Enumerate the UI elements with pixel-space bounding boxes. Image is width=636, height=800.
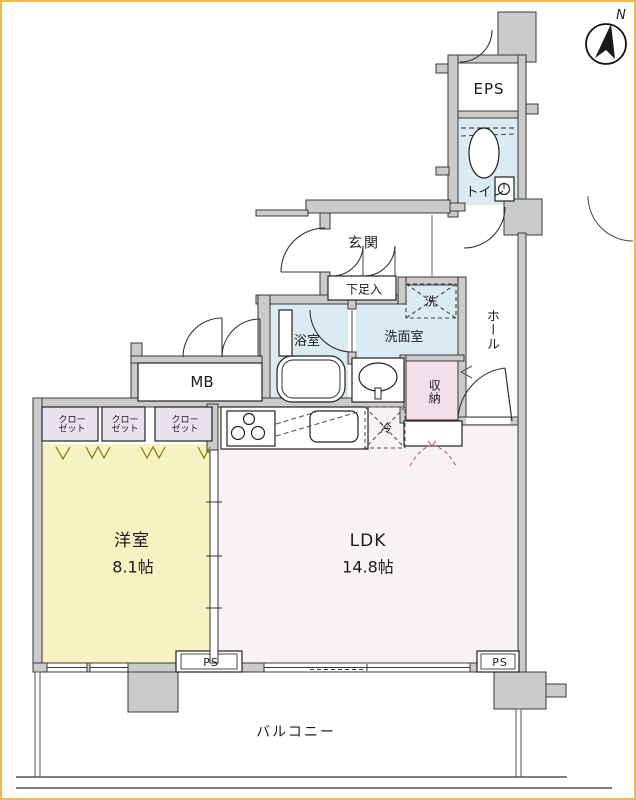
- closet-label-1-line2: ゼット: [58, 425, 85, 435]
- closet-label-2: クロー ゼット: [95, 417, 155, 436]
- refrigerator-label: 冷: [380, 423, 392, 436]
- entrance-door-arc: [281, 228, 325, 272]
- bathroom-shelf: [279, 310, 292, 356]
- washroom-label: 洗面室: [384, 331, 423, 345]
- eps-label: EPS: [473, 82, 504, 98]
- toilet-door-arc: [464, 207, 505, 248]
- neighbor-door-arc: [588, 196, 633, 241]
- mb-door-arc-2: [222, 319, 260, 357]
- floorplan-image: N EPS トイレ 玄関 下足入 洗 洗面室 ホール 浴室 MB 収納 冷 クロ…: [0, 0, 636, 800]
- western-room-size: 8.1帖: [112, 560, 153, 577]
- shoe-cabinet-label: 下足入: [346, 284, 382, 297]
- meter-box-label: MB: [190, 375, 213, 391]
- closet-label-3: クロー ゼット: [155, 417, 215, 436]
- closet-label-1: クロー ゼット: [42, 417, 102, 436]
- entrance-label: 玄関: [348, 237, 380, 252]
- toilet-label: トイレ: [465, 186, 504, 200]
- mb-door-arc-1: [183, 318, 222, 357]
- ps-left-label: PS: [203, 657, 219, 669]
- western-room-name: 洋室: [114, 533, 150, 551]
- storage-lower-cabinet: [404, 421, 462, 446]
- hall-ldk-door-gap: [466, 418, 510, 424]
- closet-label-2-line2: ゼット: [111, 425, 138, 435]
- balcony-right-divider: [516, 709, 521, 777]
- storage-label: 収納: [428, 379, 441, 405]
- hall-label: ホール: [484, 309, 498, 351]
- balcony-left-divider: [35, 672, 40, 777]
- stove: [227, 411, 275, 446]
- ldk-name: LDK: [350, 533, 387, 551]
- bathtub: [277, 356, 345, 402]
- ps-right-label: PS: [492, 657, 508, 669]
- western-room-floor: [42, 444, 212, 665]
- balcony-label: バルコニー: [256, 726, 336, 741]
- bathroom-label: 浴室: [294, 335, 320, 349]
- washer-label: 洗: [425, 296, 437, 309]
- floorplan-drawing: [2, 2, 634, 798]
- kitchen-sink: [310, 411, 358, 442]
- ldk-size: 14.8帖: [342, 560, 394, 577]
- closet-label-3-line2: ゼット: [171, 425, 198, 435]
- compass-north-label: N: [616, 9, 626, 23]
- compass: [586, 24, 626, 64]
